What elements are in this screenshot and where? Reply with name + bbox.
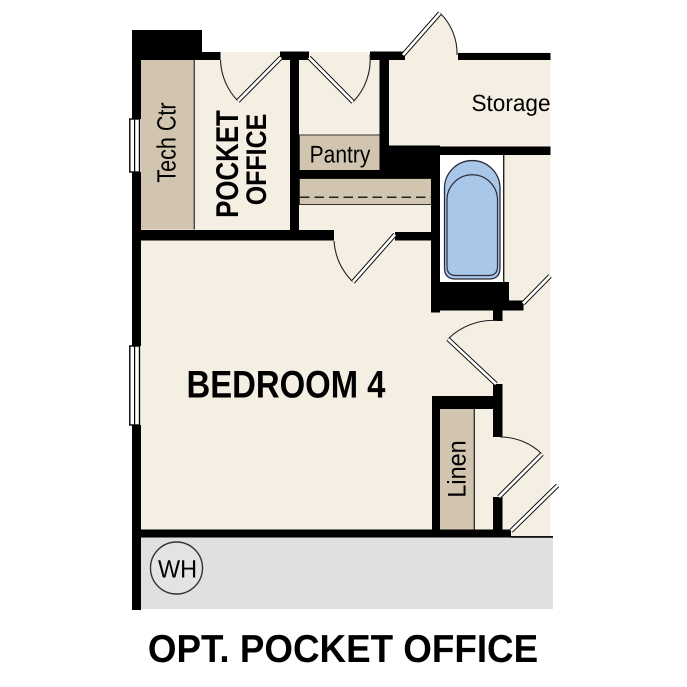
svg-text:POCKET: POCKET [209, 110, 245, 218]
svg-text:BEDROOM 4: BEDROOM 4 [187, 364, 386, 407]
svg-text:Pantry: Pantry [310, 142, 371, 169]
svg-text:OPT. POCKET OFFICE: OPT. POCKET OFFICE [148, 628, 538, 671]
svg-text:Linen: Linen [444, 440, 472, 497]
svg-text:Storage: Storage [471, 90, 550, 116]
svg-text:WH: WH [158, 556, 197, 584]
svg-text:OFFICE: OFFICE [241, 114, 273, 206]
svg-text:Tech Ctr: Tech Ctr [152, 102, 182, 182]
